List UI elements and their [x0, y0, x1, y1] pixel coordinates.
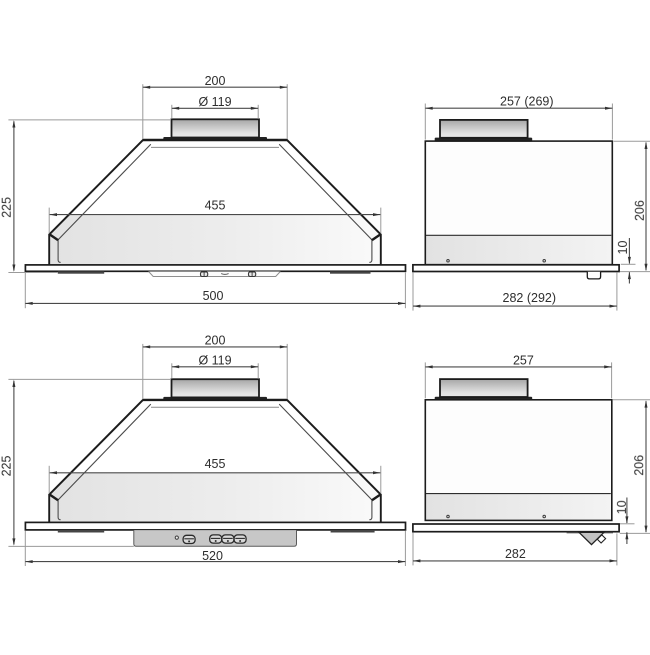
- svg-text:455: 455: [205, 457, 226, 471]
- svg-text:282 (292): 282 (292): [503, 291, 557, 305]
- svg-text:200: 200: [205, 74, 226, 88]
- svg-text:257 (269): 257 (269): [500, 95, 554, 109]
- svg-text:225: 225: [0, 197, 14, 218]
- svg-text:Ø 119: Ø 119: [198, 95, 231, 109]
- svg-text:520: 520: [202, 549, 223, 563]
- svg-text:282: 282: [505, 547, 526, 561]
- svg-text:200: 200: [205, 333, 226, 347]
- svg-text:10: 10: [615, 500, 629, 514]
- svg-text:225: 225: [0, 456, 14, 477]
- svg-text:500: 500: [203, 289, 224, 303]
- svg-text:10: 10: [616, 241, 630, 255]
- svg-text:Ø 119: Ø 119: [198, 354, 231, 368]
- svg-text:206: 206: [632, 455, 646, 476]
- svg-text:455: 455: [205, 199, 226, 213]
- svg-text:206: 206: [633, 200, 647, 221]
- svg-text:257: 257: [513, 354, 534, 368]
